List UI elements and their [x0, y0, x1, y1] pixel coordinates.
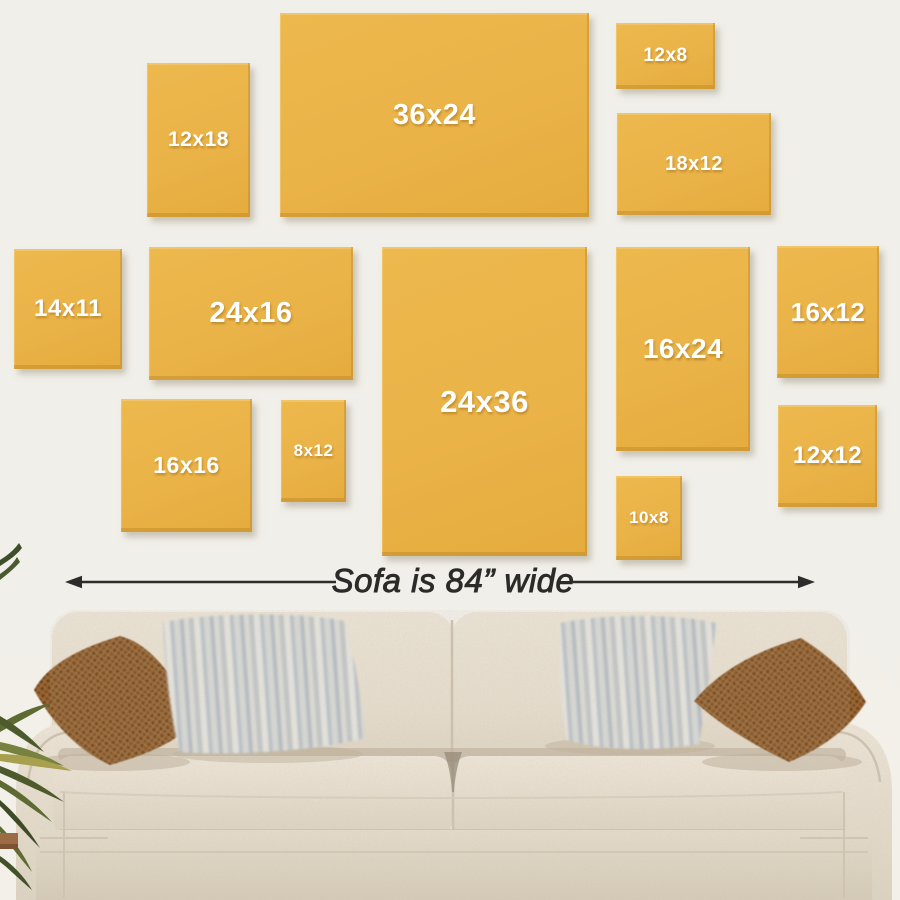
- svg-text:Sofa is 84” wide: Sofa is 84” wide: [332, 562, 575, 599]
